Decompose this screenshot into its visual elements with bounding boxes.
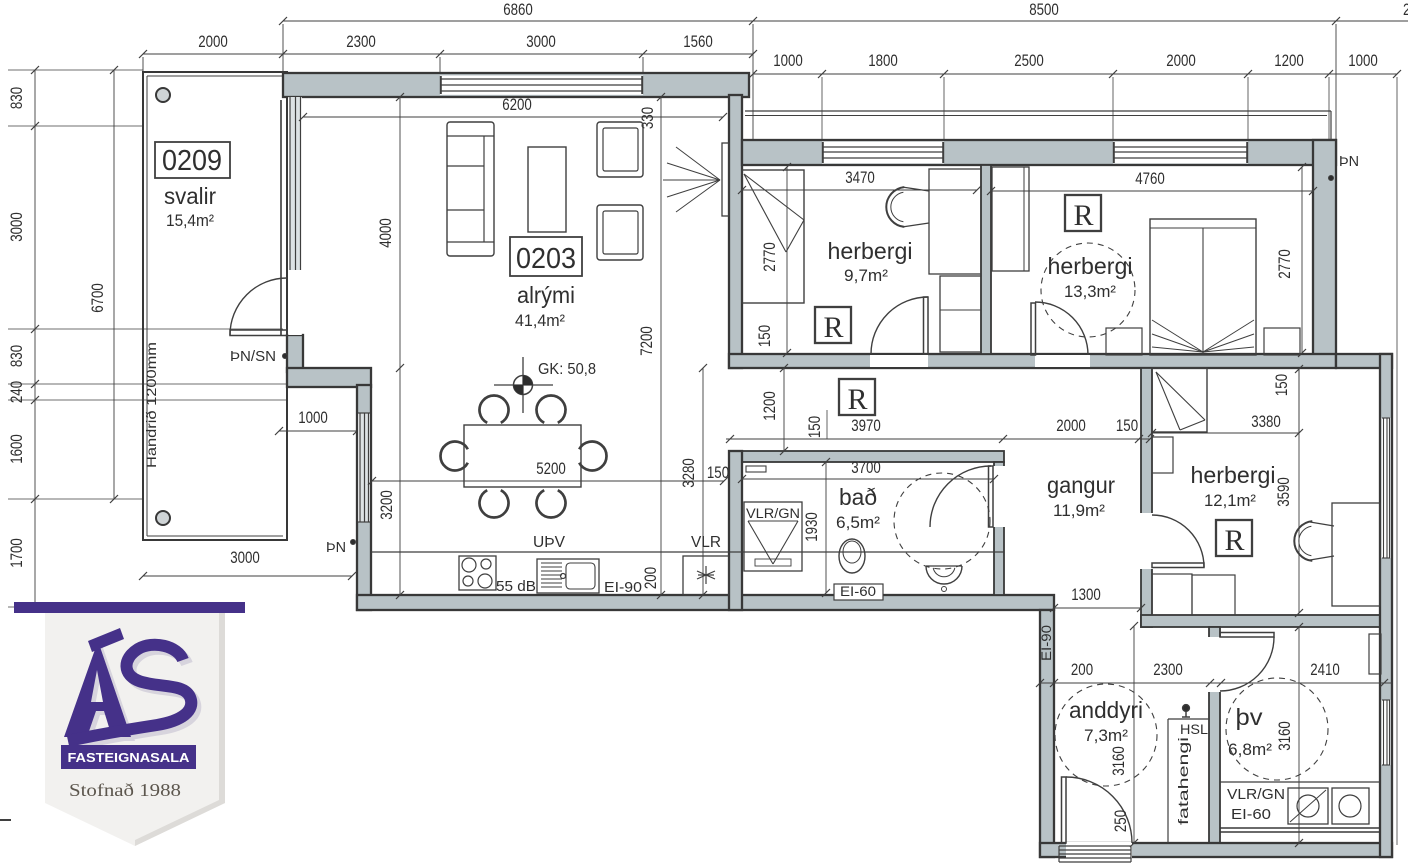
svg-text:alrými: alrými	[517, 282, 575, 308]
svg-text:3000: 3000	[8, 212, 26, 242]
svg-text:ÞN/SN: ÞN/SN	[230, 348, 276, 365]
svg-text:HSL: HSL	[1180, 721, 1208, 737]
svg-text:2300: 2300	[1153, 661, 1183, 679]
svg-text:anddyri: anddyri	[1069, 697, 1143, 723]
svg-text:7,3m²: 7,3m²	[1084, 726, 1128, 745]
svg-text:4000: 4000	[377, 218, 395, 248]
svg-text:ÞN: ÞN	[1339, 153, 1359, 170]
svg-text:150: 150	[806, 416, 824, 438]
svg-text:3160: 3160	[1276, 721, 1294, 751]
svg-text:2000: 2000	[198, 33, 228, 51]
svg-text:0209: 0209	[162, 145, 222, 177]
svg-text:3970: 3970	[851, 417, 881, 435]
svg-text:12,1m²: 12,1m²	[1204, 491, 1256, 510]
svg-text:EI-60: EI-60	[1231, 806, 1271, 823]
svg-text:1200: 1200	[761, 391, 779, 421]
svg-text:svalir: svalir	[164, 183, 216, 209]
svg-text:VLR/GN: VLR/GN	[1227, 786, 1285, 803]
svg-text:1560: 1560	[683, 33, 713, 51]
svg-text:VLR: VLR	[691, 534, 721, 551]
svg-text:830: 830	[8, 345, 26, 367]
svg-text:2000: 2000	[1166, 52, 1196, 70]
svg-text:ÞN: ÞN	[326, 539, 346, 556]
svg-text:150: 150	[756, 325, 774, 347]
svg-text:R: R	[1224, 524, 1244, 557]
svg-text:1000: 1000	[773, 52, 803, 70]
svg-text:1700: 1700	[8, 538, 26, 568]
svg-text:2: 2	[1403, 1, 1408, 19]
svg-text:6,5m²: 6,5m²	[836, 513, 880, 532]
svg-text:R: R	[847, 383, 867, 416]
svg-text:herbergi: herbergi	[828, 238, 913, 264]
svg-text:6,8m²: 6,8m²	[1228, 740, 1272, 759]
svg-text:4760: 4760	[1135, 170, 1165, 188]
svg-text:830: 830	[8, 87, 26, 109]
svg-text:9,7m²: 9,7m²	[844, 266, 888, 285]
svg-text:11,9m²: 11,9m²	[1053, 501, 1105, 520]
svg-text:1200: 1200	[1274, 52, 1304, 70]
svg-text:FASTEIGNASALA: FASTEIGNASALA	[68, 750, 191, 765]
svg-text:UÞV: UÞV	[533, 534, 565, 551]
svg-text:gangur: gangur	[1047, 472, 1115, 498]
svg-text:EI-60: EI-60	[840, 583, 876, 599]
svg-text:7200: 7200	[638, 326, 656, 356]
svg-text:R: R	[823, 311, 843, 344]
svg-text:41,4m²: 41,4m²	[515, 311, 565, 330]
svg-text:3160: 3160	[1110, 746, 1128, 776]
svg-text:5200: 5200	[536, 460, 566, 478]
svg-text:1800: 1800	[868, 52, 898, 70]
svg-text:3700: 3700	[851, 459, 881, 477]
svg-text:200: 200	[642, 567, 660, 589]
svg-text:1000: 1000	[298, 409, 328, 427]
svg-text:herbergi: herbergi	[1048, 253, 1133, 279]
svg-text:15,4m²: 15,4m²	[166, 211, 214, 230]
svg-text:bað: bað	[839, 484, 877, 510]
svg-text:2300: 2300	[346, 33, 376, 51]
svg-text:3590: 3590	[1275, 477, 1293, 507]
svg-text:fatahengi: fatahengi	[1175, 737, 1191, 825]
svg-text:330: 330	[639, 107, 657, 129]
svg-text:6860: 6860	[503, 1, 533, 19]
svg-text:150: 150	[1116, 417, 1138, 435]
svg-text:3380: 3380	[1251, 413, 1281, 431]
svg-text:3000: 3000	[230, 549, 260, 567]
svg-text:R: R	[1073, 199, 1093, 232]
svg-text:250: 250	[1112, 810, 1130, 832]
svg-text:3280: 3280	[680, 458, 698, 488]
svg-text:3470: 3470	[845, 169, 875, 187]
svg-text:200: 200	[1071, 661, 1093, 679]
svg-text:0203: 0203	[516, 243, 576, 275]
svg-text:55 dB: 55 dB	[496, 578, 536, 595]
svg-text:2770: 2770	[1276, 249, 1294, 279]
svg-text:herbergi: herbergi	[1191, 462, 1276, 488]
svg-text:EI-90: EI-90	[1039, 625, 1054, 661]
svg-text:6700: 6700	[89, 283, 107, 313]
svg-text:Handrið 1200mm: Handrið 1200mm	[143, 342, 159, 468]
svg-text:GK: 50,8: GK: 50,8	[538, 361, 596, 378]
svg-text:2500: 2500	[1014, 52, 1044, 70]
svg-text:þv: þv	[1236, 704, 1264, 730]
svg-text:1000: 1000	[1348, 52, 1378, 70]
svg-text:3000: 3000	[526, 33, 556, 51]
svg-text:13,3m²: 13,3m²	[1064, 282, 1116, 301]
svg-text:1600: 1600	[8, 434, 26, 464]
svg-text:8500: 8500	[1029, 1, 1059, 19]
svg-text:3200: 3200	[378, 490, 396, 520]
svg-text:6200: 6200	[502, 96, 532, 114]
svg-text:Stofnað 1988: Stofnað 1988	[69, 780, 181, 800]
svg-text:2410: 2410	[1310, 661, 1340, 679]
svg-text:2000: 2000	[1056, 417, 1086, 435]
svg-text:2770: 2770	[761, 242, 779, 272]
svg-text:EI-90: EI-90	[604, 579, 642, 596]
svg-text:1300: 1300	[1071, 586, 1101, 604]
svg-text:VLR/GN: VLR/GN	[746, 506, 800, 521]
svg-text:1930: 1930	[803, 512, 821, 542]
svg-text:150: 150	[1273, 374, 1291, 396]
